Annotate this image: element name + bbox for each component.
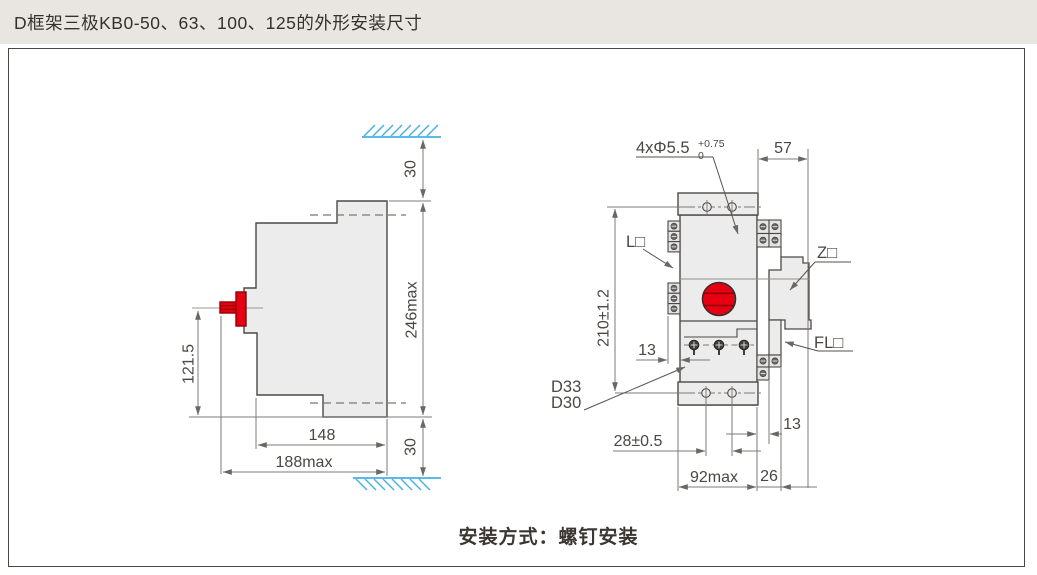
dim-depth-max: 188max [223,454,385,472]
lug-screws [684,340,754,355]
technical-drawing: 30 246max 30 121.5 148 188max [0,0,1037,575]
label-models: D33 D30 [551,367,685,412]
front-view: 4xΦ5.5 +0.75 0 57 210±1.2 13 L□ [551,138,853,491]
dim-mount-hspacing: 28±0.5 [613,433,761,451]
dim-text-right-attachment: 26 [760,468,778,485]
dim-text-mount-hspacing: 28±0.5 [614,433,663,450]
side-body-outline [244,201,387,417]
right-accessory-block [769,257,811,329]
dim-text-depth-max: 188max [276,454,333,471]
dim-text-depth-body: 148 [309,427,336,444]
dim-text-terminal-depth: 13 [638,342,656,359]
wall-hatch-bottom [353,478,441,490]
hole-callout-tol-lower: 0 [698,150,704,162]
dim-width-max: 92max 26 [679,468,817,487]
dim-text-bottom-clearance: 30 [403,438,420,456]
svg-text:FL□: FL□ [814,334,843,352]
hole-callout-tol-upper: +0.75 [698,138,725,150]
dim-text-height-max: 246max [404,282,421,339]
dim-text-top-clearance: 30 [403,160,420,178]
dim-text-mount-vspacing: 210±1.2 [596,289,613,347]
operating-handle [220,292,246,326]
dim-text-handle-height: 121.5 [181,344,198,384]
dim-top-clearance: 30 [403,140,423,198]
flange-strip [769,320,781,355]
dim-text-side-width: 57 [774,140,792,157]
right-terminal-block [757,220,781,247]
dim-text-right-strip: 13 [783,416,801,433]
wall-hatch-top [362,125,441,137]
mounting-note: 安装方式：螺钉安装 [60,522,1037,549]
svg-text:L□: L□ [626,233,645,251]
label-left-accessory: L□ [626,233,673,268]
dim-text-width-max: 92max [690,469,738,486]
red-button [703,283,736,316]
dim-right-strip: 13 [726,416,801,434]
dim-mount-vspacing: 210±1.2 [596,209,615,391]
top-flange [678,193,758,215]
dim-bottom-clearance: 30 [403,419,423,476]
hole-callout-text: 4xΦ5.5 [636,139,690,157]
svg-text:Z□: Z□ [817,244,837,262]
dim-height-max: 246max [404,203,423,415]
side-view: 30 246max 30 121.5 148 188max [181,125,441,490]
label-model-b: D30 [551,394,581,412]
dim-depth-body: 148 [258,427,385,445]
dim-handle-height: 121.5 [181,311,198,415]
label-flange-accessory: FL□ [785,334,853,352]
